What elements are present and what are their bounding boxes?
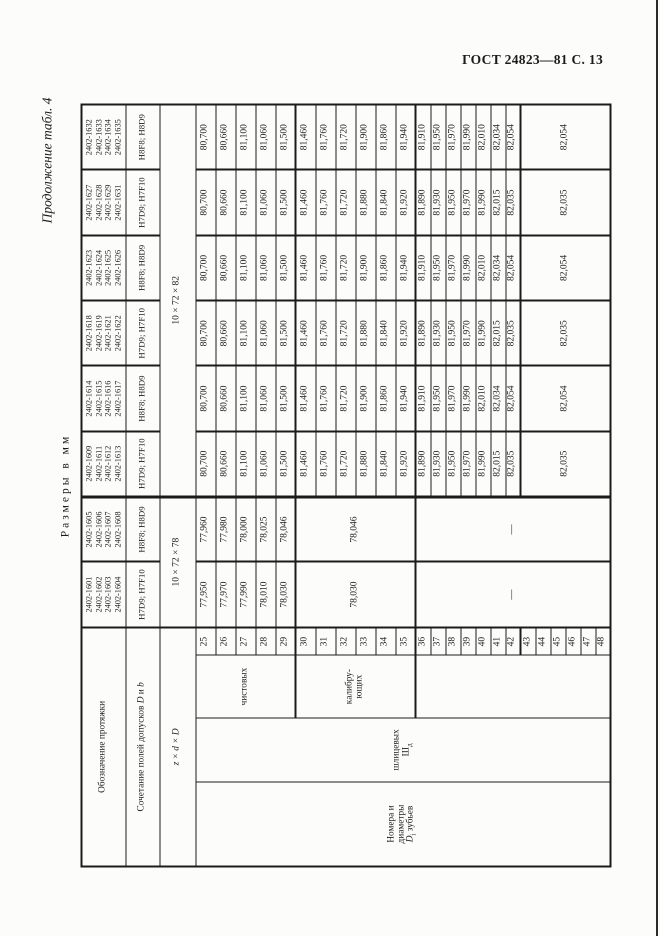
diameter-value-cell: 81,930 [431, 170, 446, 235]
diameter-value-cell: 81,060 [256, 170, 276, 235]
diameter-value-cell: 81,950 [431, 366, 446, 431]
tooth-number-cell: 47 [581, 627, 596, 655]
designation-line: 2402-1623 [85, 236, 95, 299]
diameter-value-cell: 81,760 [316, 366, 336, 431]
diameter-value-cell: 81,720 [336, 170, 356, 235]
tooth-number-cell: 31 [316, 627, 336, 655]
diameter-value-cell: 81,970 [461, 431, 476, 496]
diameter-value-cell: 81,930 [431, 301, 446, 366]
diameter-value-cell: 81,950 [446, 431, 461, 496]
diameter-value-cell: 81,500 [276, 301, 296, 366]
designation-line: 2402-1601 [85, 563, 95, 626]
tooth-number-cell: 42 [506, 627, 521, 655]
diameter-value-cell: 81,500 [276, 431, 296, 496]
designation-line: 2402-1612 [104, 432, 114, 495]
diameter-value-cell: 78,000 [236, 497, 256, 562]
diameter-value-cell: 81,990 [476, 301, 491, 366]
tooth-number-cell: 48 [596, 627, 611, 655]
diameter-value-cell: 82,034 [491, 235, 506, 300]
diameter-value-cell: 81,970 [446, 366, 461, 431]
label-line: чистовых [240, 656, 250, 717]
diameter-value-cell: 81,100 [236, 235, 256, 300]
tooth-number-cell: 32 [336, 627, 356, 655]
diameter-value-cell: 81,720 [336, 235, 356, 300]
diameter-value-cell: 81,060 [256, 301, 276, 366]
tolerance-cell: H8F8; H8D9 [126, 366, 160, 431]
designation-line: 2402-1603 [104, 563, 114, 626]
diameter-value-cell: 82,015 [491, 301, 506, 366]
diameter-value-cell: 81,910 [416, 235, 431, 300]
diameter-value-cell: 80,700 [196, 105, 216, 170]
diameter-value-cell: 81,100 [236, 170, 256, 235]
diameter-value-cell: 81,100 [236, 301, 256, 366]
designation-line: 2402-1625 [104, 236, 114, 299]
designation-line: 2402-1609 [85, 432, 95, 495]
diameter-value-cell: 81,920 [396, 170, 416, 235]
diameter-value-cell: 77,960 [196, 497, 216, 562]
header-row-tolerances: Сочетание полей допусков D и bH7D9; H7F1… [126, 105, 160, 867]
diameter-value-cell: 81,970 [461, 170, 476, 235]
diameter-value-cell: 78,025 [256, 497, 276, 562]
dash-cell: — [416, 562, 611, 627]
designation-cell: 2402-16052402-16062402-16072402-1608 [82, 497, 126, 562]
diameter-value-cell: 81,900 [356, 105, 376, 170]
tooth-number-cell: 44 [536, 627, 551, 655]
diameter-value-cell: 82,035 [506, 170, 521, 235]
diameter-value-cell: 81,460 [296, 235, 316, 300]
diameter-value-cell: 80,660 [216, 301, 236, 366]
diameter-value-cell: 81,720 [336, 366, 356, 431]
diameter-value-cell: 82,054 [521, 235, 611, 300]
diameter-value-cell: 81,890 [416, 170, 431, 235]
diameter-value-cell: 81,760 [316, 105, 336, 170]
diameter-value-cell: 81,880 [356, 431, 376, 496]
category-cell [416, 655, 611, 717]
diameter-value-cell: 82,010 [476, 105, 491, 170]
diameter-value-cell: 82,034 [491, 366, 506, 431]
designation-line: 2402-1611 [94, 432, 104, 495]
tooth-number-cell: 26 [216, 627, 236, 655]
diameter-value-cell: 81,940 [396, 105, 416, 170]
diameter-value-cell: 80,660 [216, 431, 236, 496]
tooth-number-cell: 38 [446, 627, 461, 655]
designation-line: 2402-1602 [94, 563, 104, 626]
designation-cell: 2402-16272402-16282402-16292402-1631 [82, 170, 126, 235]
designation-line: 2402-1606 [94, 498, 104, 561]
diameter-value-cell: 81,720 [336, 431, 356, 496]
diameter-value-cell: 78,030 [296, 562, 416, 627]
diameter-value-cell: 77,990 [236, 562, 256, 627]
diameter-value-cell: 81,100 [236, 366, 256, 431]
designation-line: 2402-1616 [104, 367, 114, 430]
diameter-value-cell: 81,910 [416, 366, 431, 431]
diameter-value-cell: 77,950 [196, 562, 216, 627]
designation-line: 2402-1626 [113, 236, 123, 299]
diameter-value-cell: 81,860 [376, 366, 396, 431]
diameter-value-cell: 81,990 [476, 431, 491, 496]
table-row: Номера идиаметрыDi зубьевшлицевыхШдчисто… [196, 105, 216, 867]
designation-line: 2402-1605 [85, 498, 95, 561]
diameter-value-cell: 82,015 [491, 170, 506, 235]
tolerance-cell: H8F8; H8D9 [126, 235, 160, 300]
diameter-value-cell: 80,700 [196, 431, 216, 496]
diameter-value-cell: 81,760 [316, 235, 336, 300]
designation-line: 2402-1617 [113, 367, 123, 430]
diameter-value-cell: 82,035 [506, 431, 521, 496]
diameter-value-cell: 80,700 [196, 301, 216, 366]
tooth-number-cell: 41 [491, 627, 506, 655]
designation-cell: 2402-16232402-16242402-16252402-1626 [82, 235, 126, 300]
designation-line: 2402-1614 [85, 367, 95, 430]
designation-line: 2402-1632 [85, 106, 95, 169]
diameter-value-cell: 81,950 [446, 301, 461, 366]
designation-line: 2402-1613 [113, 432, 123, 495]
diameter-value-cell: 81,720 [336, 301, 356, 366]
tooth-number-cell: 27 [236, 627, 256, 655]
header-row-designations: Обозначение протяжки2402-16012402-160224… [82, 105, 126, 867]
d-subscript: i [410, 834, 418, 836]
tolerance-cell: H7D9; H7F10 [126, 170, 160, 235]
diameter-value-cell: 81,460 [296, 105, 316, 170]
diameter-value-cell: 81,860 [376, 105, 396, 170]
tooth-number-cell: 46 [566, 627, 581, 655]
scanned-page: ГОСТ 24823—81 С. 13 Продолжение табл. 4 … [0, 0, 661, 936]
tolerance-label-cell: Сочетание полей допусков D и b [126, 627, 160, 866]
dash-cell: — [416, 497, 611, 562]
tolerance-cell: H7D9; H7F10 [126, 301, 160, 366]
diameter-value-cell: 80,660 [216, 170, 236, 235]
designation-cell: 2402-16322402-16332402-16342402-1635 [82, 105, 126, 170]
diameter-value-cell: 81,880 [356, 170, 376, 235]
tooth-number-cell: 30 [296, 627, 316, 655]
diameter-value-cell: 81,890 [416, 431, 431, 496]
gost-page-header: ГОСТ 24823—81 С. 13 [462, 52, 603, 68]
designation-line: 2402-1635 [113, 106, 123, 169]
designation-cell: 2402-16012402-16022402-16032402-1604 [82, 562, 126, 627]
sh-subscript: д [405, 743, 413, 747]
numbers-diameters-label: Номера идиаметрыDi зубьев [196, 782, 611, 866]
diameter-value-cell: 82,010 [476, 366, 491, 431]
units-heading: Размеры в мм [60, 86, 81, 886]
category-cell: калибру-ющих [296, 655, 416, 717]
designation-line: 2402-1627 [85, 171, 95, 234]
diameter-value-cell: 81,900 [356, 235, 376, 300]
tooth-number-cell: 40 [476, 627, 491, 655]
diameter-value-cell: 81,500 [276, 235, 296, 300]
diameter-value-cell: 82,035 [506, 301, 521, 366]
diameter-value-cell: 81,060 [256, 431, 276, 496]
tolerance-cell: H7D9; H7F10 [126, 562, 160, 627]
diameter-value-cell: 82,035 [521, 170, 611, 235]
tolerance-cell: H8F8; H8D9 [126, 497, 160, 562]
diameter-value-cell: 81,840 [376, 301, 396, 366]
diameter-value-cell: 80,660 [216, 105, 236, 170]
designation-line: 2402-1618 [85, 302, 95, 365]
diameter-value-cell: 81,100 [236, 105, 256, 170]
designation-cell: 2402-16142402-16152402-16162402-1617 [82, 366, 126, 431]
diameter-value-cell: 82,035 [521, 301, 611, 366]
diameter-value-cell: 81,940 [396, 366, 416, 431]
diameter-value-cell: 81,060 [256, 366, 276, 431]
diameter-value-cell: 80,700 [196, 366, 216, 431]
diameter-value-cell: 78,046 [276, 497, 296, 562]
tooth-number-cell: 43 [521, 627, 536, 655]
diameter-value-cell: 81,060 [256, 105, 276, 170]
designation-line: 2402-1619 [94, 302, 104, 365]
size-cell: 10 × 72 × 78 [160, 497, 196, 628]
scan-edge-artifact [656, 0, 658, 936]
diameter-value-cell: 77,970 [216, 562, 236, 627]
size-formula-cell: z × d × D [160, 627, 196, 866]
diameter-value-cell: 81,950 [446, 170, 461, 235]
diameter-value-cell: 81,970 [446, 235, 461, 300]
tooth-number-cell: 34 [376, 627, 396, 655]
diameter-value-cell: 78,046 [296, 497, 416, 562]
diameter-value-cell: 77,980 [216, 497, 236, 562]
diameter-value-cell: 82,054 [506, 366, 521, 431]
designation-line: 2402-1633 [94, 106, 104, 169]
designation-label-cell: Обозначение протяжки [82, 627, 126, 866]
label-line: Di зубьев [407, 783, 418, 866]
tolerance-cell: H8F8; H8D9 [126, 105, 160, 170]
tooth-number-cell: 25 [196, 627, 216, 655]
tooth-number-cell: 37 [431, 627, 446, 655]
label-line: Шд [402, 718, 413, 781]
designation-cell: 2402-16182402-16192402-16212402-1622 [82, 301, 126, 366]
diameter-value-cell: 81,970 [461, 301, 476, 366]
diameter-value-cell: 81,840 [376, 431, 396, 496]
diameter-value-cell: 81,840 [376, 170, 396, 235]
tooth-number-cell: 28 [256, 627, 276, 655]
diameter-value-cell: 81,940 [396, 235, 416, 300]
designation-line: 2402-1629 [104, 171, 114, 234]
diameter-value-cell: 81,760 [316, 301, 336, 366]
diameter-value-cell: 81,890 [416, 301, 431, 366]
tooth-number-cell: 39 [461, 627, 476, 655]
diameter-value-cell: 82,015 [491, 431, 506, 496]
tooth-number-cell: 35 [396, 627, 416, 655]
diameter-value-cell: 81,970 [446, 105, 461, 170]
diameter-value-cell: 81,720 [336, 105, 356, 170]
diameter-value-cell: 81,990 [476, 170, 491, 235]
tooth-number-cell: 29 [276, 627, 296, 655]
category-cell: чистовых [196, 655, 296, 717]
label-line: ющих [356, 656, 366, 717]
diameter-value-cell: 82,010 [476, 235, 491, 300]
broach-dimensions-table: Обозначение протяжки2402-16012402-160224… [81, 104, 612, 868]
diameter-value-cell: 81,950 [431, 235, 446, 300]
diameter-value-cell: 81,100 [236, 431, 256, 496]
d-symbol: D [406, 836, 416, 843]
diameter-value-cell: 81,460 [296, 366, 316, 431]
splined-label: шлицевыхШд [196, 718, 611, 782]
tolerance-cell: H7D9; H7F10 [126, 431, 160, 496]
designation-line: 2402-1607 [104, 498, 114, 561]
diameter-value-cell: 82,054 [521, 366, 611, 431]
diameter-value-cell: 81,500 [276, 170, 296, 235]
diameter-value-cell: 81,920 [396, 431, 416, 496]
diameter-value-cell: 81,930 [431, 431, 446, 496]
diameter-value-cell: 82,054 [506, 105, 521, 170]
designation-line: 2402-1624 [94, 236, 104, 299]
rotated-table-stage: Продолжение табл. 4 Размеры в мм Обознач… [38, 86, 615, 886]
diameter-value-cell: 81,990 [461, 366, 476, 431]
diameter-value-cell: 80,660 [216, 235, 236, 300]
diameter-value-cell: 82,035 [521, 431, 611, 496]
diameter-value-cell: 81,060 [256, 235, 276, 300]
designation-line: 2402-1621 [104, 302, 114, 365]
designation-line: 2402-1631 [113, 171, 123, 234]
continuation-note: Продолжение табл. 4 [38, 86, 60, 886]
diameter-value-cell: 81,500 [276, 105, 296, 170]
diameter-value-cell: 81,460 [296, 170, 316, 235]
diameter-value-cell: 81,910 [416, 105, 431, 170]
diameter-value-cell: 81,990 [461, 235, 476, 300]
header-row-sizes: z × d × D10 × 72 × 7810 × 72 × 82 [160, 105, 196, 867]
tooth-number-cell: 33 [356, 627, 376, 655]
diameter-value-cell: 81,920 [396, 301, 416, 366]
diameter-value-cell: 81,460 [296, 431, 316, 496]
diameter-value-cell: 80,700 [196, 235, 216, 300]
diameter-value-cell: 81,760 [316, 431, 336, 496]
designation-cell: 2402-16092402-16112402-16122402-1613 [82, 431, 126, 496]
diameter-value-cell: 81,760 [316, 170, 336, 235]
diameter-value-cell: 82,054 [506, 235, 521, 300]
designation-line: 2402-1634 [104, 106, 114, 169]
tooth-number-cell: 36 [416, 627, 431, 655]
diameter-value-cell: 80,700 [196, 170, 216, 235]
diameter-value-cell: 82,034 [491, 105, 506, 170]
tolerance-d: D [137, 697, 147, 704]
diameter-value-cell: 80,660 [216, 366, 236, 431]
tooth-number-cell: 45 [551, 627, 566, 655]
designation-line: 2402-1622 [113, 302, 123, 365]
diameter-value-cell: 81,990 [461, 105, 476, 170]
diameter-value-cell: 81,950 [431, 105, 446, 170]
diameter-value-cell: 81,500 [276, 366, 296, 431]
diameter-value-cell: 81,900 [356, 366, 376, 431]
designation-line: 2402-1608 [113, 498, 123, 561]
size-cell: 10 × 72 × 82 [160, 105, 196, 497]
diameter-value-cell: 81,460 [296, 301, 316, 366]
diameter-value-cell: 78,010 [256, 562, 276, 627]
designation-line: 2402-1604 [113, 563, 123, 626]
diameter-value-cell: 81,860 [376, 235, 396, 300]
diameter-value-cell: 78,030 [276, 562, 296, 627]
tolerance-b: b [137, 682, 147, 687]
designation-line: 2402-1628 [94, 171, 104, 234]
designation-line: 2402-1615 [94, 367, 104, 430]
diameter-value-cell: 82,054 [521, 105, 611, 170]
diameter-value-cell: 81,880 [356, 301, 376, 366]
